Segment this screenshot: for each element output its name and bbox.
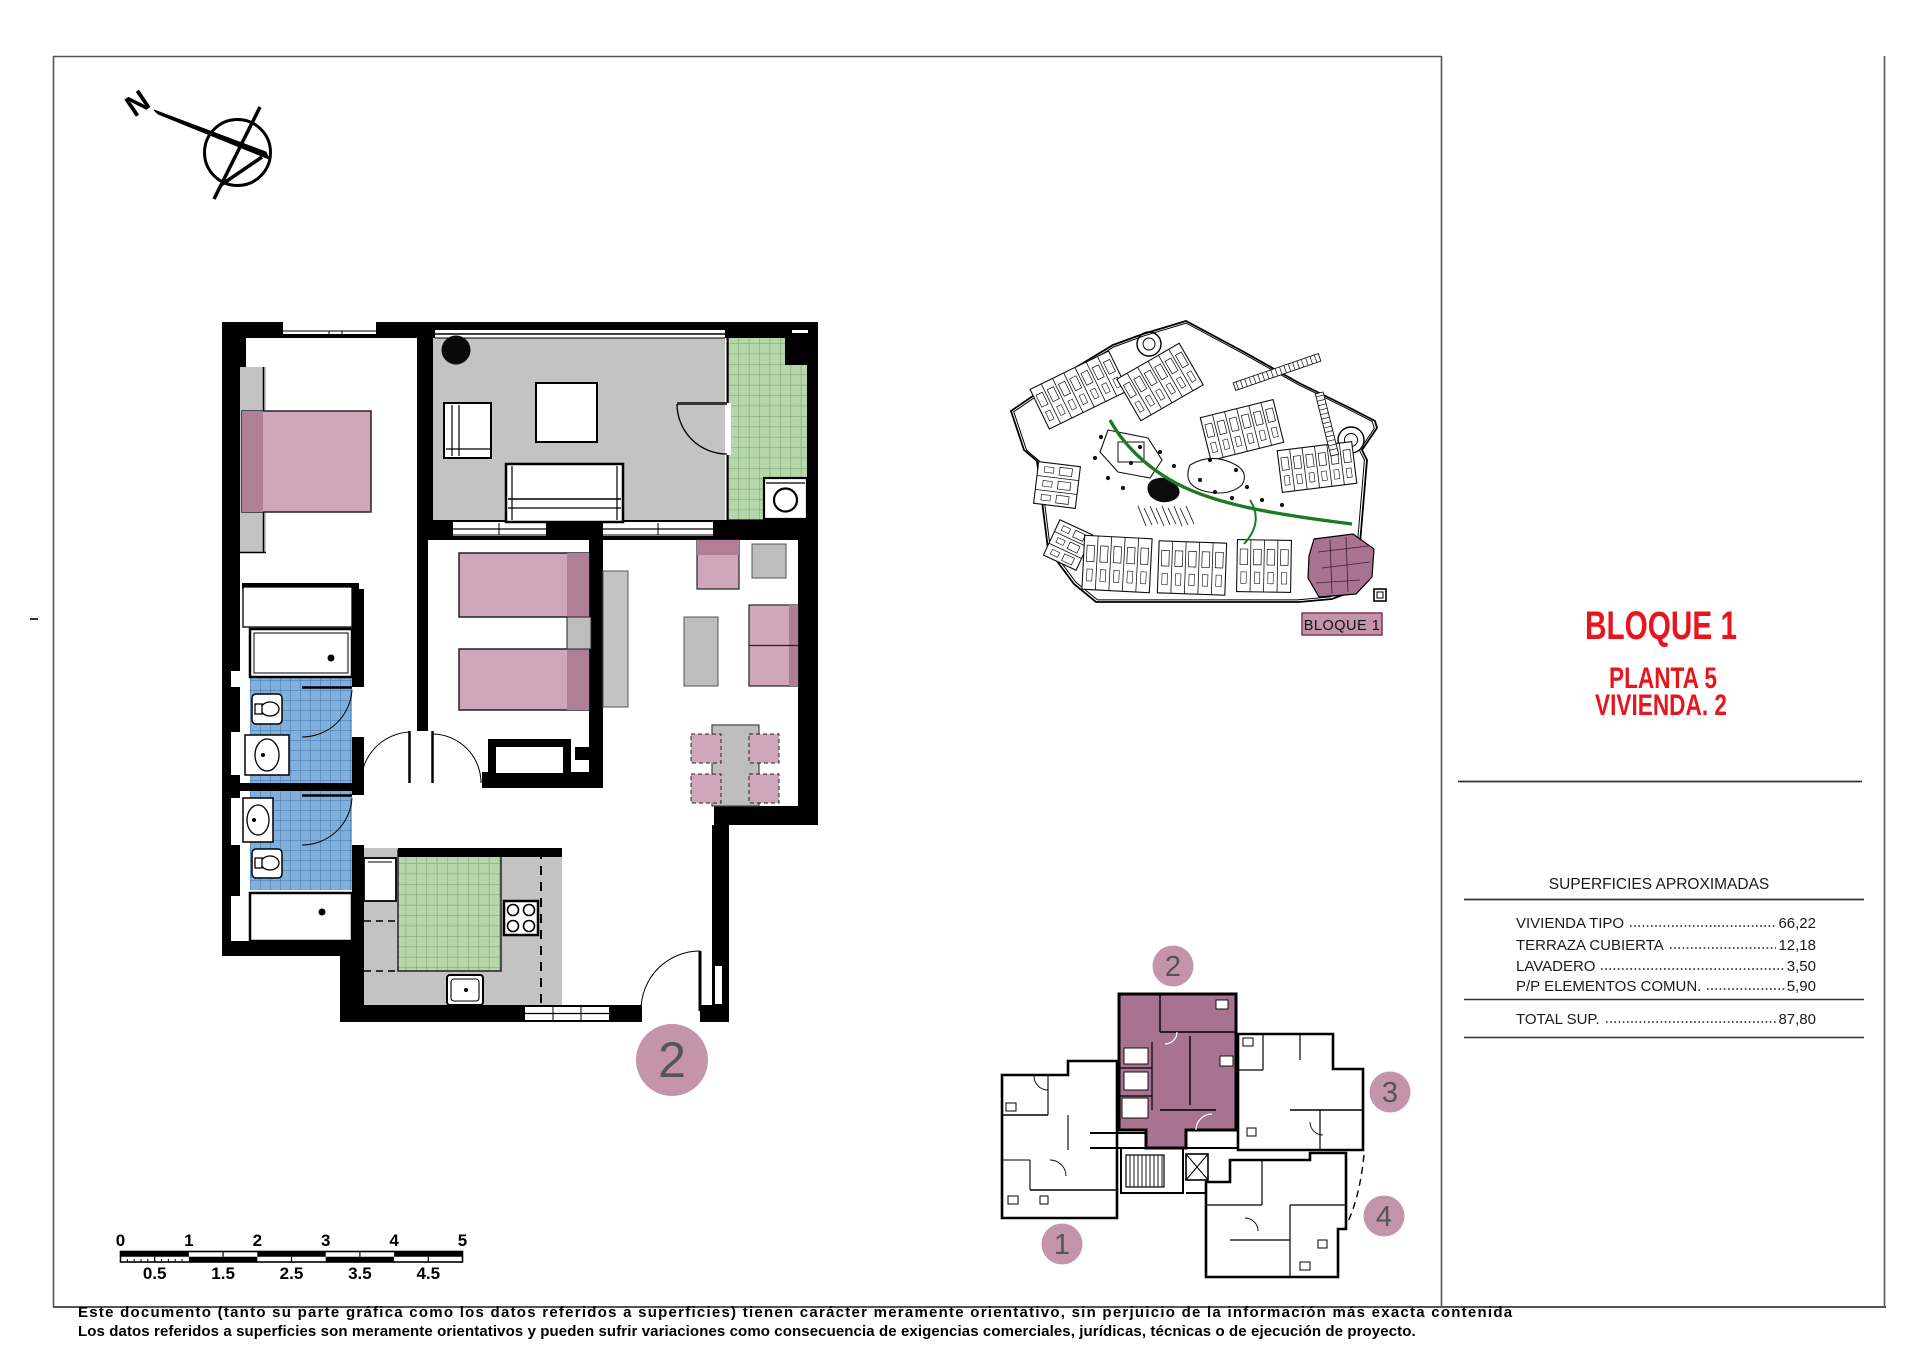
svg-text:87,80: 87,80 — [1778, 1011, 1816, 1028]
svg-text:BLOQUE 1: BLOQUE 1 — [1585, 604, 1737, 648]
svg-text:3.5: 3.5 — [348, 1264, 372, 1283]
svg-text:SUPERFICIES APROXIMADAS: SUPERFICIES APROXIMADAS — [1549, 876, 1770, 893]
svg-text:1: 1 — [184, 1231, 193, 1250]
svg-text:0.5: 0.5 — [143, 1264, 167, 1283]
svg-text:0: 0 — [116, 1231, 125, 1250]
svg-text:2: 2 — [1165, 951, 1181, 983]
svg-text:VIVIENDA. 2: VIVIENDA. 2 — [1595, 689, 1727, 722]
svg-text:4.5: 4.5 — [416, 1264, 440, 1283]
svg-text:Este documento (tanto su parte: Este documento (tanto su parte gráfica c… — [78, 1304, 1513, 1321]
svg-text:TERRAZA CUBIERTA: TERRAZA CUBIERTA — [1516, 937, 1664, 954]
svg-text:12,18: 12,18 — [1778, 937, 1816, 954]
svg-text:P/P ELEMENTOS COMUN.: P/P ELEMENTOS COMUN. — [1516, 978, 1701, 995]
svg-text:3,50: 3,50 — [1787, 958, 1816, 975]
svg-text:LAVADERO: LAVADERO — [1516, 958, 1595, 975]
svg-text:5,90: 5,90 — [1787, 978, 1816, 995]
svg-text:2: 2 — [253, 1231, 262, 1250]
svg-text:66,22: 66,22 — [1778, 915, 1816, 932]
svg-text:3: 3 — [321, 1231, 330, 1250]
svg-text:VIVIENDA TIPO: VIVIENDA TIPO — [1516, 915, 1624, 932]
svg-text:2.5: 2.5 — [280, 1264, 304, 1283]
svg-text:4: 4 — [1376, 1201, 1392, 1233]
svg-text:3: 3 — [1382, 1077, 1398, 1109]
svg-text:5: 5 — [458, 1231, 467, 1250]
svg-text:1: 1 — [1054, 1229, 1070, 1261]
svg-text:4: 4 — [389, 1231, 399, 1250]
svg-text:1.5: 1.5 — [211, 1264, 235, 1283]
svg-text:TOTAL SUP.: TOTAL SUP. — [1516, 1011, 1600, 1028]
svg-text:2: 2 — [658, 1032, 686, 1088]
svg-text:BLOQUE 1: BLOQUE 1 — [1304, 618, 1381, 634]
svg-text:Los datos referidos a superfic: Los datos referidos a superficies son me… — [78, 1323, 1416, 1340]
svg-text:N: N — [120, 84, 156, 123]
